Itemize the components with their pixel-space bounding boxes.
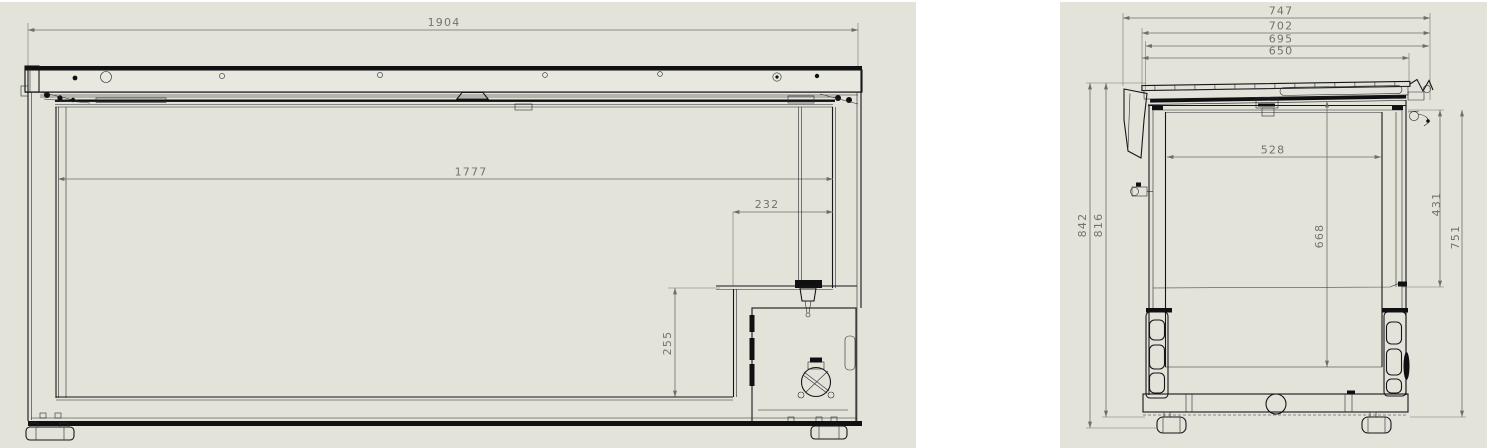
dim-compartment-height-value: 255 [661,331,674,356]
front-view: 1904 [0,2,916,448]
dim-front-panel-height-value: 751 [1449,225,1462,250]
dim-body-height-value: 816 [1092,213,1105,238]
dim-interior-height-value: 668 [1313,224,1326,249]
dim-interior-width-value: 1777 [455,166,488,179]
side-view: 747 702 695 650 [1060,2,1487,448]
side-view-paper [1060,2,1487,448]
dim-interior-depth-value: 528 [1261,144,1286,157]
dim-overall-depth-value: 747 [1269,5,1294,18]
dim-compartment-width-value: 232 [755,198,780,211]
dim-upper-panel-height-value: 431 [1430,192,1443,217]
dim-opening-depth-value: 650 [1269,45,1294,58]
dim-overall-width-value: 1904 [428,16,461,29]
drawing-canvas: 1904 [0,0,1487,448]
dim-overall-height-value: 842 [1076,213,1089,238]
dim-lid-depth-value: 702 [1269,20,1294,33]
technical-drawing-page: 1904 [0,0,1487,448]
